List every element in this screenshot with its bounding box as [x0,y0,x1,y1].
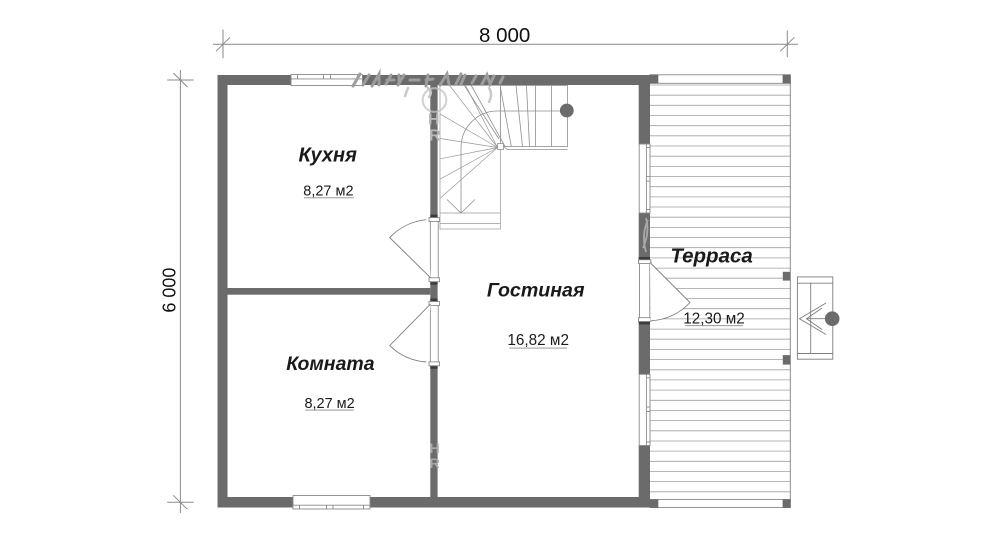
svg-text:Н: Н [430,440,440,456]
svg-text:8,27 м2: 8,27 м2 [304,396,354,412]
svg-text:Комната: Комната [286,353,375,375]
svg-text:8,27 м2: 8,27 м2 [303,184,353,200]
svg-text:Гостиная: Гостиная [487,280,585,302]
svg-text:8 000: 8 000 [479,24,530,47]
svg-text:Н: Н [428,112,440,129]
svg-text:6 000: 6 000 [159,268,179,313]
svg-text:12,30 м2: 12,30 м2 [683,311,745,328]
svg-text:16,82 м2: 16,82 м2 [507,332,569,349]
svg-text:Терраса: Терраса [670,245,752,268]
svg-text:R: R [429,128,441,145]
svg-text:Кухня: Кухня [299,145,358,167]
svg-text:R: R [430,455,440,471]
